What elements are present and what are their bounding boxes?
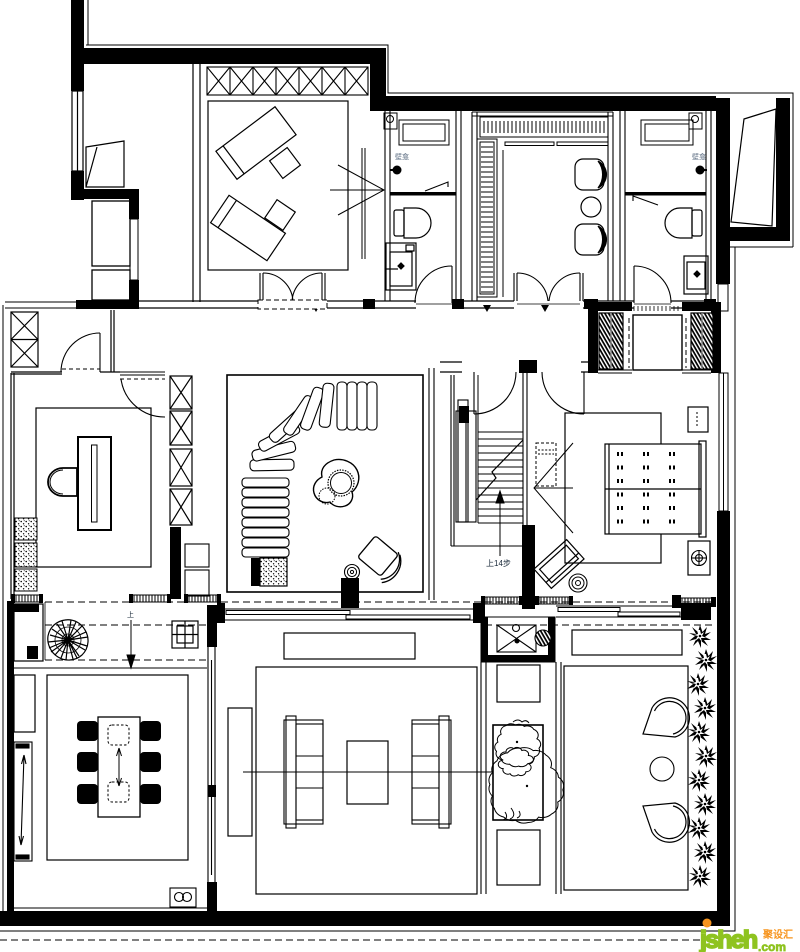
svg-text:jsheh: jsheh [699,926,757,952]
svg-text:聚设汇: 聚设汇 [762,928,793,941]
svg-text:壁龛: 壁龛 [692,152,706,161]
svg-text:.com: .com [758,940,786,952]
svg-text:上: 上 [127,610,134,619]
svg-text:壁龛: 壁龛 [395,152,409,161]
svg-text:上14步: 上14步 [486,559,511,568]
